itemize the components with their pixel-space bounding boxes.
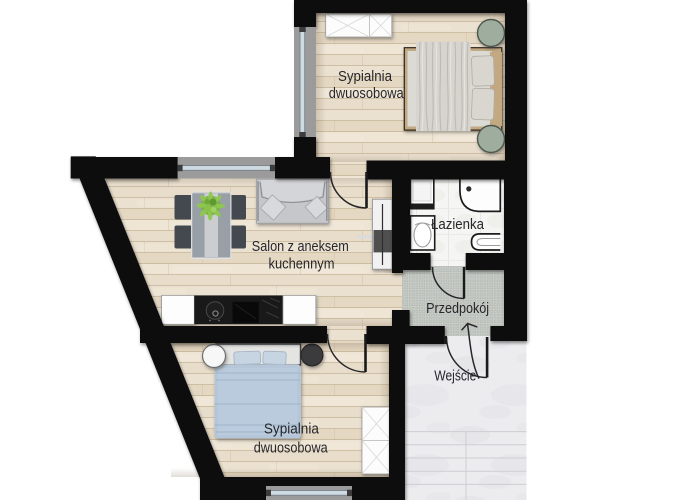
- svg-text:Łazienka: Łazienka: [431, 216, 485, 233]
- svg-text:Przedpokój: Przedpokój: [426, 300, 489, 317]
- svg-text:dwuosobowa: dwuosobowa: [254, 440, 329, 457]
- svg-text:dwuosobowa: dwuosobowa: [329, 85, 405, 102]
- svg-text:kuchennym: kuchennym: [269, 256, 335, 273]
- svg-text:Wejście: Wejście: [434, 368, 476, 385]
- svg-text:Sypialnia: Sypialnia: [264, 421, 320, 438]
- svg-text:Salon z aneksem: Salon z aneksem: [252, 238, 349, 255]
- svg-text:Sypialnia: Sypialnia: [338, 68, 393, 85]
